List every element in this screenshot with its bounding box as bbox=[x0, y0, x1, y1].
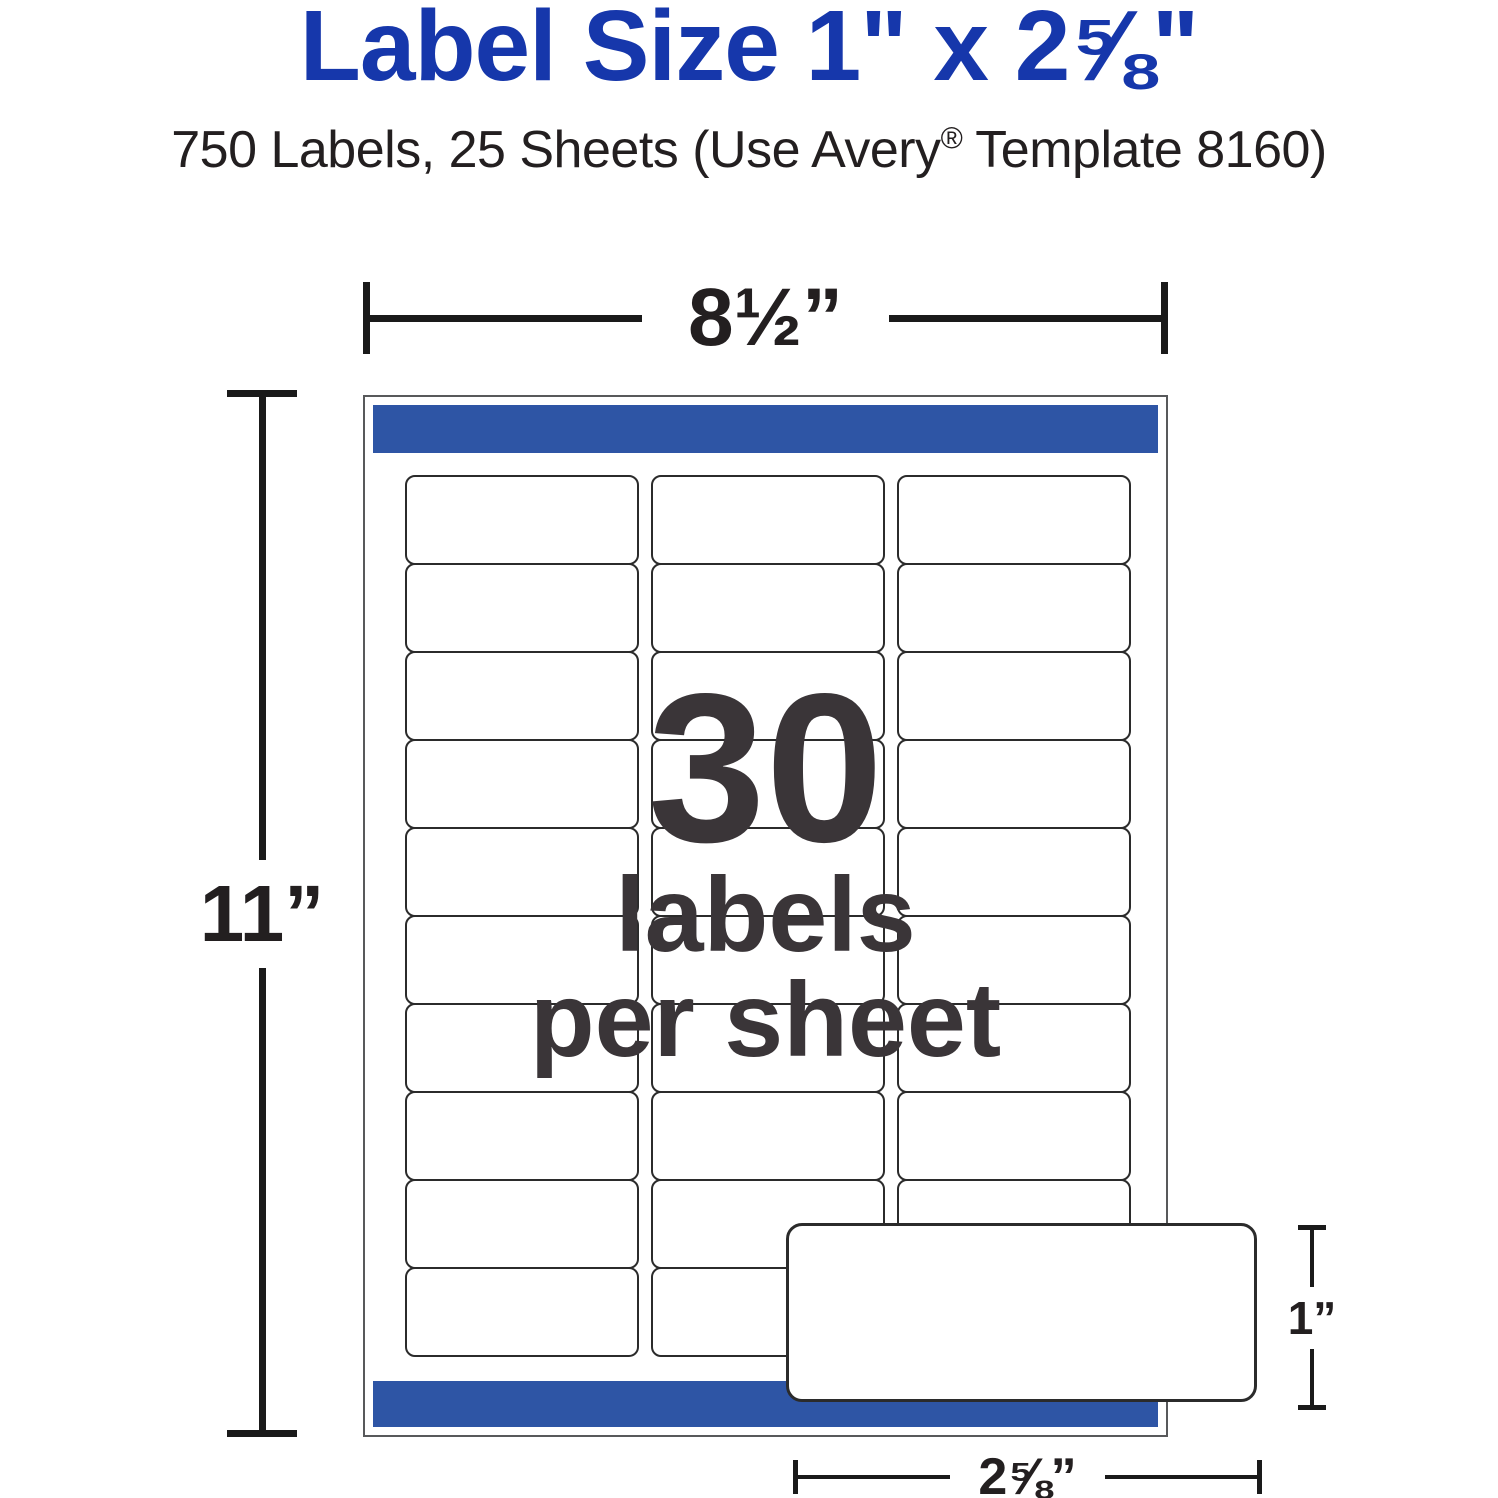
subtitle-text: 750 Labels, 25 Sheets (Use Avery bbox=[171, 121, 940, 179]
label-cell bbox=[651, 475, 885, 565]
label-width-value: 2⅝” bbox=[978, 1451, 1076, 1498]
labels-count: 30 bbox=[365, 677, 1166, 859]
label-size-infographic: Label Size 1" x 2⅝" 750 Labels, 25 Sheet… bbox=[0, 0, 1498, 1498]
sheet-height-value: 11” bbox=[200, 874, 325, 954]
label-cell bbox=[405, 1179, 639, 1269]
label-cell bbox=[897, 475, 1131, 565]
label-cell bbox=[405, 1091, 639, 1181]
single-label-callout bbox=[786, 1223, 1257, 1402]
page-subtitle: 750 Labels, 25 Sheets (Use Avery® Templa… bbox=[0, 118, 1498, 183]
page-title: Label Size 1" x 2⅝" bbox=[0, 0, 1498, 99]
dimension-line bbox=[1105, 1475, 1257, 1479]
dimension-line bbox=[259, 397, 266, 860]
sheet-width-value: 8½” bbox=[688, 277, 843, 359]
labels-per-sheet-callout: 30 labels per sheet bbox=[365, 677, 1166, 1071]
label-cell bbox=[897, 563, 1131, 653]
dimension-end-cap bbox=[1161, 282, 1168, 354]
per-sheet-words: per sheet bbox=[365, 970, 1166, 1071]
dimension-end-cap bbox=[363, 282, 370, 354]
dimension-sheet-height: 11” bbox=[227, 390, 297, 1437]
label-cell bbox=[405, 563, 639, 653]
dimension-line bbox=[370, 315, 642, 322]
label-cell bbox=[405, 475, 639, 565]
dimension-end-cap bbox=[227, 1430, 297, 1437]
label-cell bbox=[897, 1091, 1131, 1181]
dimension-label-width: 2⅝” bbox=[793, 1455, 1262, 1498]
label-cell bbox=[651, 1091, 885, 1181]
dimension-end-cap bbox=[227, 390, 297, 397]
label-cell bbox=[651, 563, 885, 653]
registered-trademark-mark: ® bbox=[941, 123, 963, 156]
labels-word: labels bbox=[365, 865, 1166, 966]
sheet-top-margin-bar bbox=[373, 405, 1158, 453]
label-height-value: 1” bbox=[1288, 1295, 1337, 1341]
label-cell bbox=[405, 1267, 639, 1357]
dimension-end-cap bbox=[1298, 1405, 1326, 1410]
dimension-sheet-width: 8½” bbox=[363, 282, 1168, 354]
dimension-line bbox=[1310, 1349, 1314, 1406]
dimension-line bbox=[259, 968, 266, 1431]
dimension-label-height: 1” bbox=[1298, 1225, 1326, 1410]
dimension-line bbox=[1310, 1230, 1314, 1287]
dimension-end-cap bbox=[1257, 1460, 1262, 1494]
dimension-line bbox=[889, 315, 1161, 322]
dimension-line bbox=[798, 1475, 950, 1479]
subtitle-text-end: Template 8160) bbox=[962, 121, 1326, 179]
